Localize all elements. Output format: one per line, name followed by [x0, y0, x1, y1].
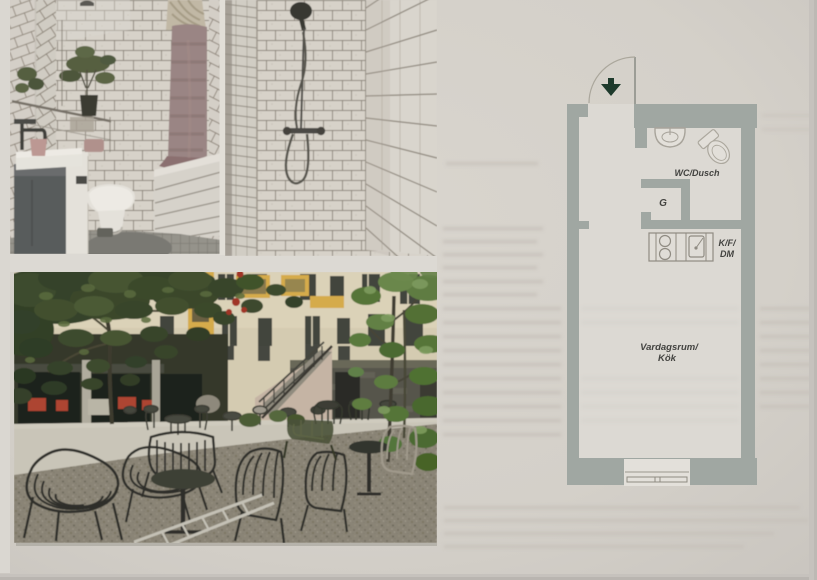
svg-text:DM: DM	[720, 249, 734, 259]
svg-text:Vardagsrum/: Vardagsrum/	[640, 342, 699, 353]
svg-text:K/F/: K/F/	[719, 238, 737, 248]
svg-text:WC/Dusch: WC/Dusch	[675, 168, 721, 178]
svg-text:Kök: Kök	[658, 353, 677, 364]
svg-text:G: G	[659, 198, 667, 209]
